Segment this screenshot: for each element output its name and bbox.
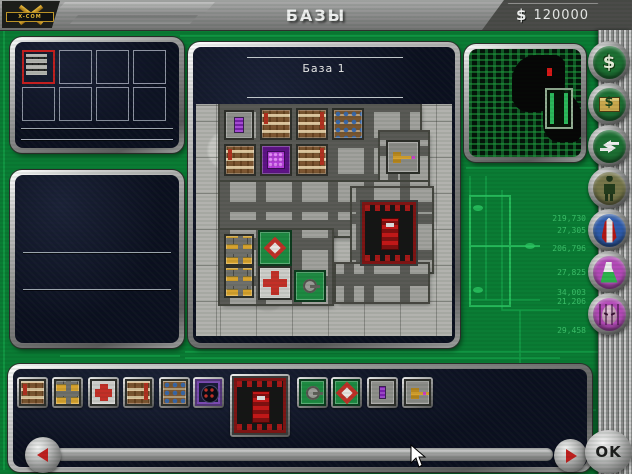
pcb-number: 34,003 — [540, 288, 586, 297]
facility-living-quarters[interactable] — [296, 108, 328, 140]
dollar-icon: $ — [603, 52, 616, 73]
facility-general-stores[interactable] — [224, 266, 254, 298]
base-list-panel-inner — [15, 42, 179, 148]
pcb-number: 21,206 — [540, 297, 586, 306]
strip-tile-living-quarters[interactable] — [123, 377, 154, 408]
pcb-number: 29,458 — [540, 326, 586, 335]
title-bar: X-COM БАЗЫ $ 120000 — [0, 0, 632, 31]
base-view-panel: База 1 — [188, 42, 460, 348]
research-button[interactable] — [588, 251, 630, 293]
craft-icon — [381, 218, 399, 250]
funds-amount: 120000 — [533, 8, 589, 23]
pcb-number: 219,730 — [540, 214, 586, 223]
facility-hangar[interactable] — [360, 200, 418, 266]
divider-line — [21, 139, 173, 140]
base-slot-5[interactable] — [22, 87, 55, 121]
facility-laboratory[interactable] — [332, 108, 364, 140]
soldier-icon — [603, 176, 616, 201]
base-location-marker — [547, 68, 552, 76]
soldiers-button[interactable] — [588, 167, 630, 209]
base-list-panel — [10, 37, 184, 153]
base-slot-2[interactable] — [59, 50, 92, 84]
scroll-left-button[interactable] — [25, 437, 61, 473]
facility-medical-bay[interactable] — [258, 266, 292, 300]
divider-line — [21, 128, 173, 129]
bases-screen: 219,730 27,305 206,796 27,825 34,003 21,… — [0, 0, 632, 474]
funds-display: $ 120000 — [482, 0, 632, 30]
minimap-panel — [464, 44, 586, 162]
sell-button[interactable]: $ — [588, 83, 630, 125]
base-slot-8[interactable] — [133, 87, 166, 121]
base-thumbnail — [26, 54, 47, 75]
crate-dollar-icon: $ — [599, 97, 620, 112]
facility-strip-panel — [8, 364, 592, 472]
header-line — [247, 57, 403, 58]
base-slot-7[interactable] — [96, 87, 129, 121]
facility-living-quarters[interactable] — [296, 144, 328, 176]
transfer-button[interactable] — [588, 125, 630, 167]
pcb-number: 27,305 — [540, 226, 586, 235]
facility-access-lift[interactable] — [224, 110, 254, 140]
divider-line — [23, 289, 171, 290]
facility-workshop[interactable] — [386, 140, 420, 174]
base-slot-3[interactable] — [96, 50, 129, 84]
base-slot-1[interactable] — [22, 50, 55, 84]
base-info-panel — [10, 170, 184, 348]
strip-tile-alien-containment[interactable] — [193, 377, 224, 408]
facility-gun-defense[interactable] — [294, 270, 326, 302]
craft-icon — [602, 218, 617, 243]
header-line — [247, 97, 403, 98]
alien-containment-button[interactable] — [588, 293, 630, 335]
alien-head-icon — [599, 304, 620, 325]
base-name: База 1 — [193, 62, 455, 75]
base-slot-4[interactable] — [133, 50, 166, 84]
base-view-inner: База 1 — [193, 47, 455, 343]
base-slot-6[interactable] — [59, 87, 92, 121]
craft-button[interactable] — [588, 209, 630, 251]
base-structure — [336, 264, 428, 302]
facility-missile-defense[interactable] — [258, 230, 292, 266]
strip-tile-missile-defense[interactable] — [331, 377, 362, 408]
strip-tile-access-lift[interactable] — [367, 377, 398, 408]
strip-tile-medical-bay[interactable] — [88, 377, 119, 408]
pcb-number: 206,796 — [540, 244, 586, 253]
left-arrow-icon — [30, 448, 48, 462]
craft-icon — [252, 391, 270, 423]
strip-tile-living-quarters[interactable] — [17, 377, 48, 408]
funds-button[interactable]: $ — [588, 41, 630, 83]
divider-line — [23, 252, 171, 253]
facility-general-stores[interactable] — [224, 234, 254, 266]
strip-tile-hangar[interactable] — [230, 374, 290, 437]
minimap[interactable] — [469, 49, 581, 157]
facility-living-quarters[interactable] — [224, 144, 256, 176]
right-arrow-icon — [566, 449, 584, 463]
scroll-right-button[interactable] — [554, 439, 587, 472]
mouse-cursor — [410, 444, 427, 469]
facility-psi-lab[interactable] — [260, 144, 292, 176]
strip-tile-gun-defense[interactable] — [297, 377, 328, 408]
facility-living-quarters[interactable] — [260, 108, 292, 140]
pcb-number: 27,825 — [540, 268, 586, 277]
ok-label: OK — [595, 443, 621, 461]
base-info-panel-inner — [15, 175, 179, 343]
strip-tile-general-stores[interactable] — [52, 377, 83, 408]
minimap-structure — [545, 88, 574, 129]
ok-button[interactable]: OK — [585, 430, 632, 474]
strip-tile-laboratory[interactable] — [159, 377, 190, 408]
flask-icon — [601, 262, 618, 283]
dollar-icon: $ — [516, 6, 526, 24]
strip-tile-workshop[interactable] — [402, 377, 433, 408]
strip-scrollbar-track[interactable] — [55, 448, 553, 461]
transfer-arrows-icon — [598, 139, 621, 154]
base-map[interactable] — [196, 104, 452, 336]
